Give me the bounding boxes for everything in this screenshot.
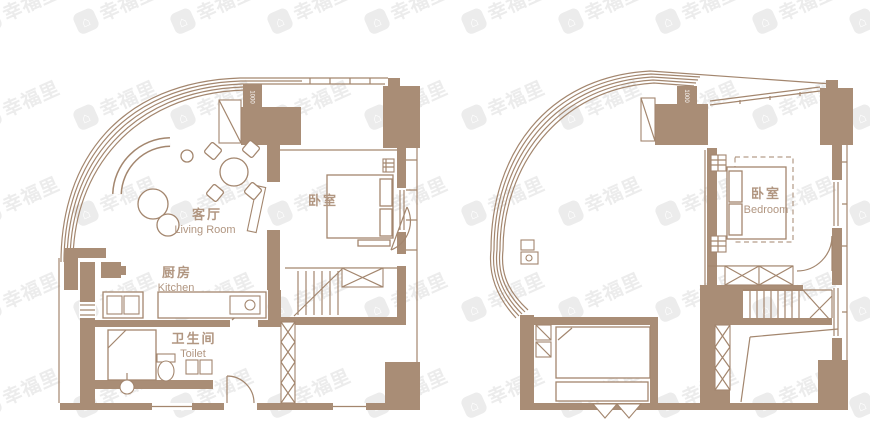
closet: [641, 98, 655, 141]
floorplan-svg: 1000 客厅 Living Room 厨房 Kitchen 卫生间 Toile…: [0, 0, 870, 432]
sofa: [117, 142, 170, 194]
bedroom-label-en: Bedroom: [744, 204, 789, 216]
kitchen-counter: [103, 292, 266, 318]
upper-floor-plan: 1000 卧室 Bedroom: [490, 71, 853, 418]
dining-table: [204, 140, 262, 202]
wardrobe: [708, 266, 793, 285]
toilet-label-zh: 卫生间: [171, 331, 216, 346]
sink: [186, 360, 212, 374]
staircase: [743, 290, 832, 320]
floorplan-image: ⌂幸福里⌂幸福里⌂幸福里⌂幸福里⌂幸福里⌂幸福里⌂幸福里⌂幸福里⌂幸福里⌂幸福里…: [0, 0, 870, 432]
toilet-label-en: Toilet: [180, 348, 206, 360]
closet: [219, 100, 241, 143]
bedroom-label-zh: 卧室: [751, 186, 781, 201]
bedroom-door: [797, 236, 832, 271]
shaft-column: [715, 325, 730, 390]
dimension-label: 1000: [683, 89, 689, 103]
kitchen-label-zh: 厨房: [162, 265, 192, 280]
lower-floor-plan: 1000 客厅 Living Room 厨房 Kitchen 卫生间 Toile…: [59, 78, 420, 410]
entry-door: [227, 376, 254, 403]
living-room-label-zh: 客厅: [192, 207, 222, 222]
bedroom-label-zh: 卧室: [308, 193, 338, 208]
kitchen-label-en: Kitchen: [158, 282, 195, 294]
dimension-label: 1000: [249, 90, 255, 104]
floor-lamp: [181, 150, 193, 162]
bedroom-door: [391, 207, 410, 250]
shaft-column: [281, 322, 295, 403]
toilet-fixture: [157, 354, 175, 381]
staircase: [285, 268, 397, 316]
living-room-label-en: Living Room: [174, 224, 235, 236]
coffee-table: [138, 189, 179, 236]
